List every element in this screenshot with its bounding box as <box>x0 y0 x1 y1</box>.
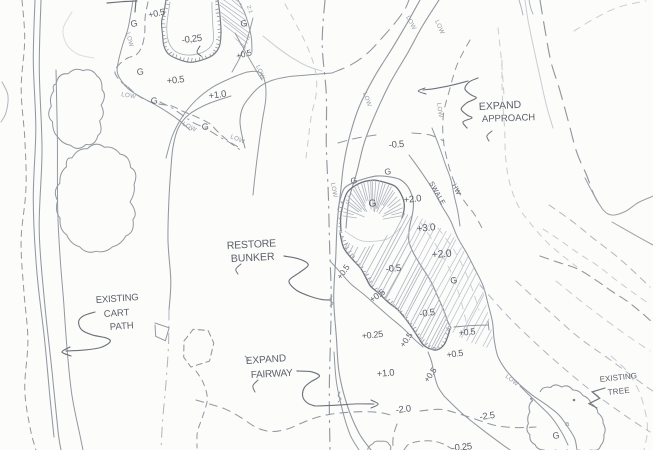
svg-text:G: G <box>150 95 158 106</box>
svg-text:G: G <box>136 66 144 77</box>
svg-text:CART: CART <box>103 307 130 320</box>
svg-text:+1.0: +1.0 <box>376 367 394 379</box>
svg-text:-2.0: -2.0 <box>395 403 411 416</box>
svg-text:-0,25: -0,25 <box>181 33 202 46</box>
svg-text:PATH: PATH <box>109 320 134 333</box>
svg-text:-2.5: -2.5 <box>479 410 496 423</box>
svg-text:-0.5: -0.5 <box>419 307 436 320</box>
svg-text:APPROACH: APPROACH <box>482 112 536 125</box>
svg-text:BUNKER: BUNKER <box>231 251 276 265</box>
svg-text:FAIRWAY: FAIRWAY <box>251 368 294 381</box>
svg-text:+0.5: +0.5 <box>458 326 476 338</box>
svg-text:-0.5: -0.5 <box>385 263 401 275</box>
svg-text:G: G <box>201 121 209 132</box>
svg-text:+2.0: +2.0 <box>431 248 452 261</box>
svg-text:+2.0: +2.0 <box>403 193 422 206</box>
svg-text:+3.0: +3.0 <box>416 222 436 235</box>
svg-text:-0.5: -0.5 <box>388 139 404 151</box>
svg-text:-0.25: -0.25 <box>451 441 472 450</box>
svg-text:EXPAND: EXPAND <box>479 99 522 113</box>
svg-text:+0.5: +0.5 <box>166 74 185 87</box>
